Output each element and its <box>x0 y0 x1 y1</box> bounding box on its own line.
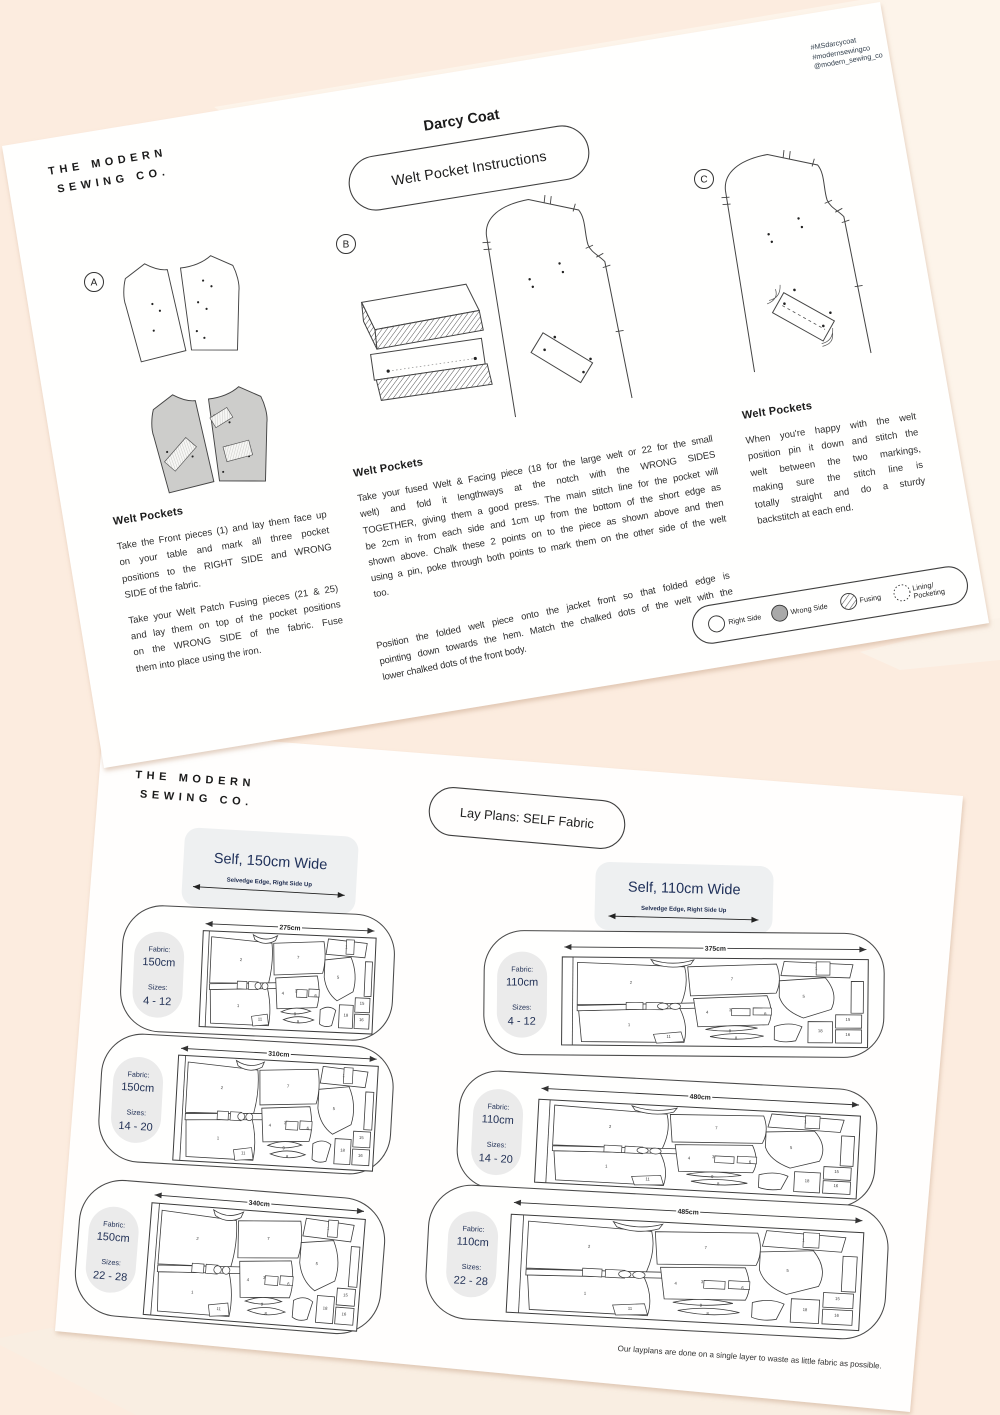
svg-text:110cm: 110cm <box>481 1113 514 1127</box>
svg-text:110cm: 110cm <box>506 976 538 988</box>
svg-text:Fabric:: Fabric: <box>462 1224 484 1234</box>
svg-text:Sizes:: Sizes: <box>512 1003 532 1012</box>
svg-text:Fabric:: Fabric: <box>487 1102 509 1112</box>
svg-text:C: C <box>700 175 707 186</box>
svg-text:110cm: 110cm <box>456 1235 489 1249</box>
svg-text:150cm: 150cm <box>121 1081 155 1095</box>
svg-text:Fabric:: Fabric: <box>511 964 533 973</box>
svg-text:Sizes:: Sizes: <box>126 1107 146 1117</box>
svg-text:4 - 12: 4 - 12 <box>143 995 172 1008</box>
svg-text:4 - 12: 4 - 12 <box>508 1015 536 1027</box>
svg-text:Fabric:: Fabric: <box>103 1219 126 1230</box>
svg-text:22 - 28: 22 - 28 <box>453 1274 488 1288</box>
svg-text:Fabric:: Fabric: <box>148 944 170 954</box>
svg-text:150cm: 150cm <box>142 956 176 969</box>
svg-text:14 - 20: 14 - 20 <box>118 1120 153 1134</box>
svg-text:18: 18 <box>818 1028 823 1033</box>
svg-text:11: 11 <box>667 1034 672 1039</box>
svg-text:B: B <box>343 240 350 251</box>
svg-text:Self, 110cm Wide: Self, 110cm Wide <box>628 880 741 899</box>
svg-text:480cm: 480cm <box>689 1094 711 1102</box>
svg-text:14 - 20: 14 - 20 <box>478 1152 513 1166</box>
svg-text:310cm: 310cm <box>268 1051 290 1059</box>
svg-text:18: 18 <box>344 1012 350 1017</box>
svg-text:275cm: 275cm <box>279 924 300 932</box>
svg-text:Sizes:: Sizes: <box>486 1140 506 1150</box>
svg-text:Fabric:: Fabric: <box>127 1069 149 1079</box>
svg-text:16: 16 <box>845 1032 850 1037</box>
svg-text:Sizes:: Sizes: <box>461 1262 481 1272</box>
svg-text:A: A <box>91 278 98 289</box>
svg-text:485cm: 485cm <box>677 1209 699 1217</box>
svg-text:Sizes:: Sizes: <box>101 1257 121 1268</box>
svg-text:Sizes:: Sizes: <box>148 982 168 992</box>
svg-text:15: 15 <box>846 1017 851 1022</box>
svg-text:375cm: 375cm <box>705 946 726 953</box>
